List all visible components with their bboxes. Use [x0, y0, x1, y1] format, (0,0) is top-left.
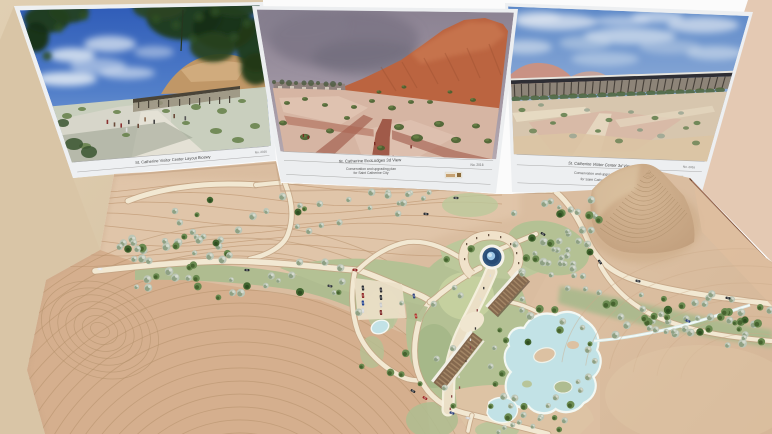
svg-text:for Saint Catherine City: for Saint Catherine City [353, 171, 388, 175]
svg-text:No. 2016: No. 2016 [471, 163, 484, 167]
svg-text:No. 2016: No. 2016 [683, 165, 696, 170]
